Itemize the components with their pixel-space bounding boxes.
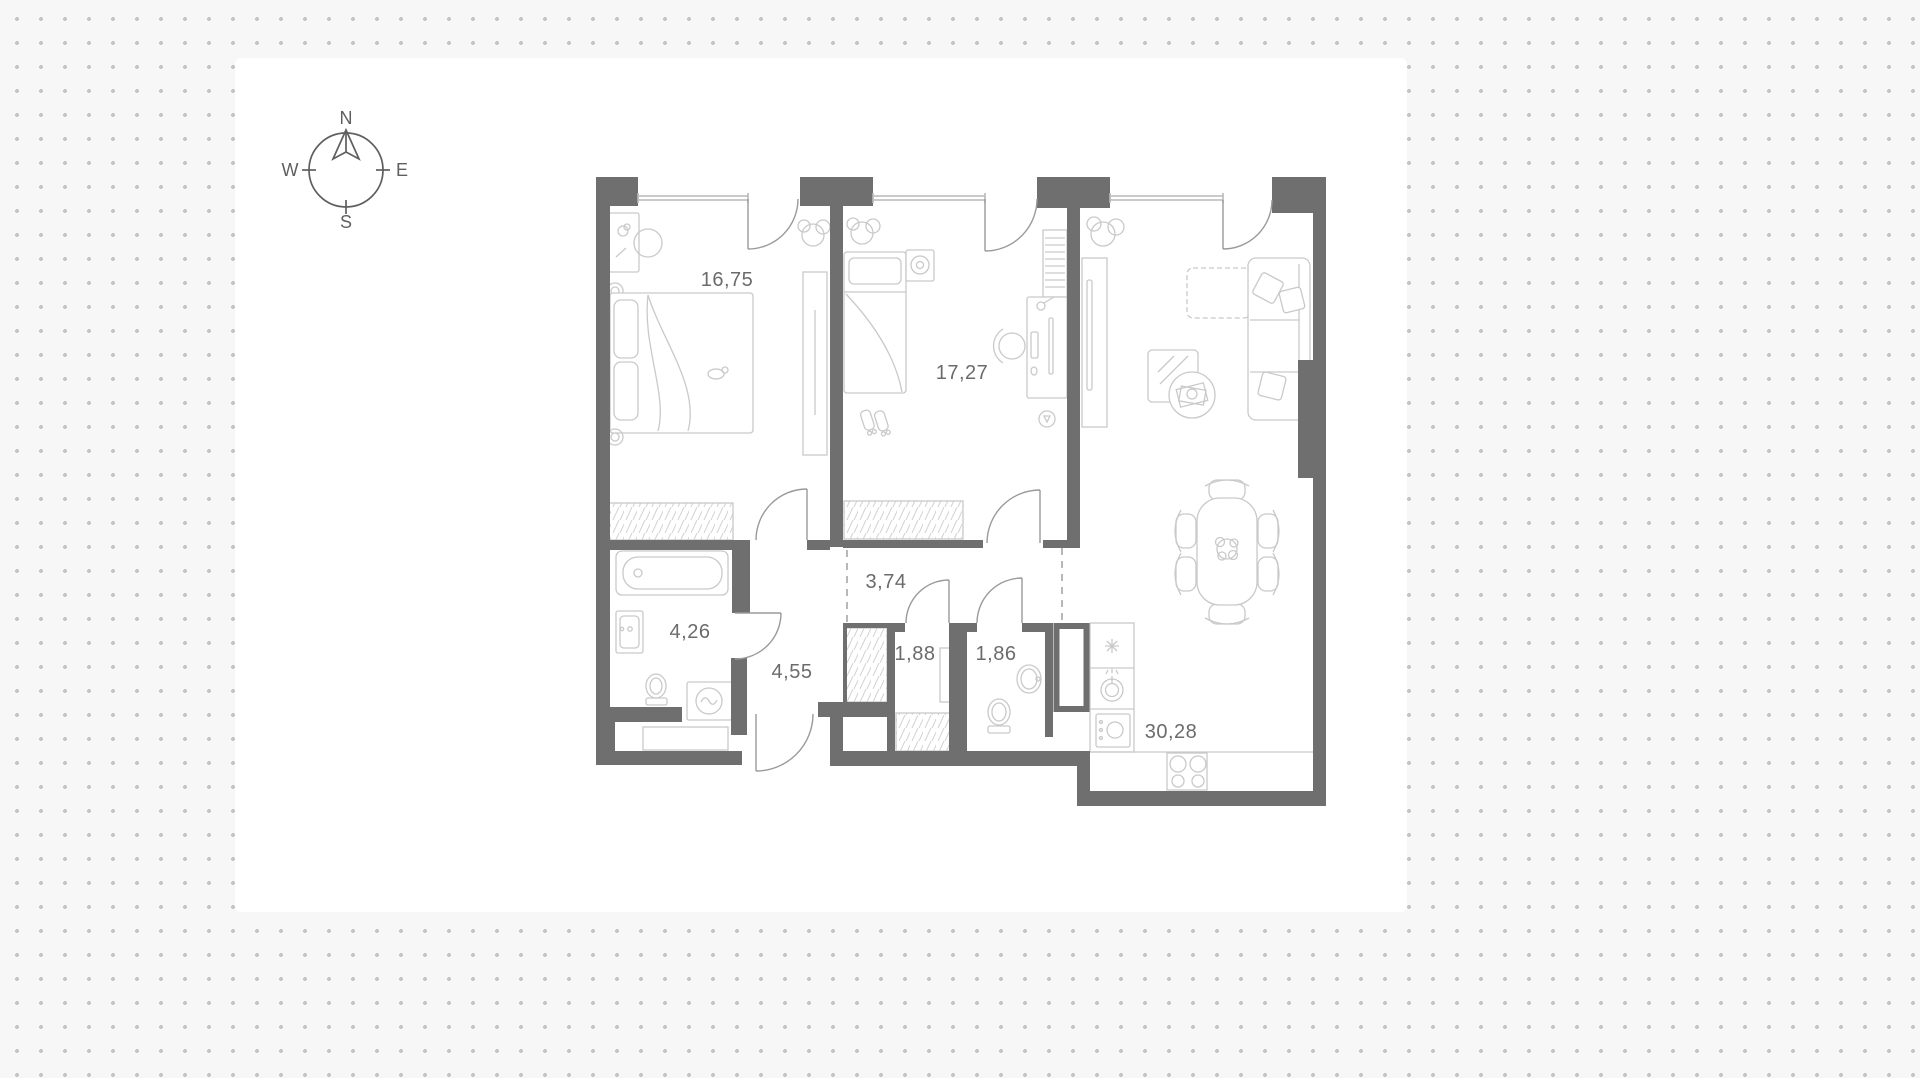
wall-storage-wc xyxy=(949,623,967,752)
floor-plan-drawing: 16,75 17,27 3,74 4,26 4,55 1,88 1,86 30,… xyxy=(0,0,1920,1078)
dining-chair xyxy=(1175,553,1196,595)
wall-entry-side xyxy=(830,702,843,751)
wall-right-pier xyxy=(1298,360,1326,478)
asterisk-icon xyxy=(1105,639,1119,653)
door-bathroom xyxy=(735,613,781,659)
living-room-furniture xyxy=(1082,217,1310,427)
entry-niche xyxy=(643,727,728,750)
dining-chair xyxy=(1175,510,1196,552)
room-label-wc: 1,86 xyxy=(976,643,1017,665)
compass-label-south: S xyxy=(340,212,352,232)
ventilation-shaft xyxy=(1057,626,1087,709)
wall-bottom-left xyxy=(596,751,742,765)
wall-bottom-kitchen xyxy=(1077,791,1326,806)
room-label-bedroom-1: 16,75 xyxy=(701,269,754,291)
wall-bottom-middle xyxy=(830,751,1088,766)
door-wc xyxy=(977,578,1022,623)
wall-pillar xyxy=(800,177,873,206)
wall-closet-bottom xyxy=(818,702,890,717)
window-bedroom-2 xyxy=(873,193,985,203)
room-label-hallway: 4,55 xyxy=(772,661,813,683)
storage-hatched-wardrobe xyxy=(896,713,958,751)
soccer-ball-icon xyxy=(1039,411,1055,427)
wall-stub xyxy=(807,540,830,550)
compass-rose: N E S W xyxy=(282,108,409,232)
dining-chair xyxy=(1258,510,1279,552)
wall-bathroom-right-upper xyxy=(732,550,750,613)
wall-wc-right xyxy=(1045,623,1053,737)
wall-closet-left xyxy=(843,623,847,703)
sofa-pillow xyxy=(1257,371,1286,400)
double-bed xyxy=(610,293,753,433)
side-table-round xyxy=(1169,372,1215,418)
wc-fixtures xyxy=(988,665,1041,733)
room-label-storage: 1,88 xyxy=(895,643,936,665)
door-entrance xyxy=(756,714,813,771)
sofa-chaise xyxy=(1187,268,1250,318)
wall-step xyxy=(605,722,615,751)
bedroom1-furniture xyxy=(607,213,830,540)
windows xyxy=(638,193,1223,203)
door-balcony-living xyxy=(1223,200,1272,249)
roller-skates-icon xyxy=(860,405,891,441)
page-background-dot-grid: 16,75 17,27 3,74 4,26 4,55 1,88 1,86 30,… xyxy=(0,0,1920,1078)
window-living-room xyxy=(1110,193,1223,203)
wall-bathroom-right-lower xyxy=(731,658,747,735)
dining-chair xyxy=(1258,553,1279,595)
dining-chair xyxy=(1205,480,1249,500)
dining-table xyxy=(1197,498,1257,605)
wall-closet-top xyxy=(843,623,890,628)
hall-closet-hatched xyxy=(846,628,887,702)
wall-stub xyxy=(1043,540,1078,548)
dining-set xyxy=(1175,480,1279,624)
door-balcony-bedroom-1 xyxy=(748,199,798,249)
room-label-kitchen-living: 30,28 xyxy=(1145,721,1198,743)
door-bedroom-1 xyxy=(756,489,807,540)
wall-left-exterior xyxy=(596,177,610,765)
wall-pillar xyxy=(1037,177,1110,208)
chair-back xyxy=(994,329,1003,363)
plant-icon xyxy=(802,224,824,246)
wardrobe-hatched xyxy=(608,503,733,540)
wall-bed1-bed2 xyxy=(830,206,843,547)
wall-stub xyxy=(967,623,977,632)
door-balcony-bedroom-2 xyxy=(985,199,1037,251)
wall-right-exterior xyxy=(1313,206,1326,806)
room-label-corridor: 3,74 xyxy=(866,571,907,593)
plant-icon xyxy=(851,222,873,244)
window-bedroom-1 xyxy=(638,193,748,203)
desk xyxy=(1027,297,1067,398)
door-bedroom-2 xyxy=(987,490,1040,543)
desk-chair xyxy=(999,333,1025,359)
sofa-pillow xyxy=(1279,287,1306,314)
door-storage xyxy=(906,580,949,623)
wall-bathroom-bottom xyxy=(610,707,682,722)
tv-console xyxy=(1082,258,1107,427)
wardrobe-hatched xyxy=(844,501,963,539)
wall-bed2-bottom xyxy=(843,540,983,548)
bedside-table xyxy=(906,250,934,281)
room-label-bedroom-2: 17,27 xyxy=(936,362,989,384)
compass-label-east: E xyxy=(396,160,408,180)
wall-bed2-living xyxy=(1067,208,1080,548)
wall-stub xyxy=(895,623,905,632)
room-label-bathroom: 4,26 xyxy=(670,621,711,643)
dining-chair xyxy=(1205,604,1249,624)
compass-label-north: N xyxy=(340,108,353,128)
compass-label-west: W xyxy=(282,160,299,180)
kitchen-fixtures xyxy=(1090,623,1313,790)
wall-bed1-bottom xyxy=(610,540,750,550)
